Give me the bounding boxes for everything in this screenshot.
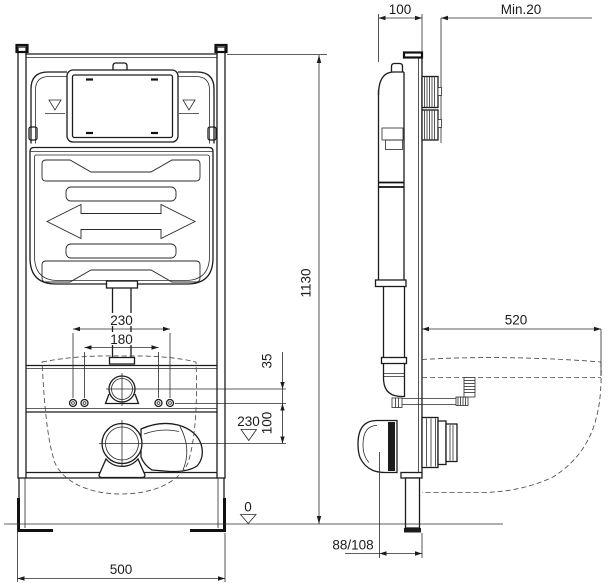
frame-height-dimension: 1130 [227,55,327,525]
marker-drain-height: 230 [237,414,260,429]
dim-bowl-depth: 520 [505,313,528,328]
cistern-frame-drawing: 230 180 35 100 230 0 [0,0,608,583]
waste-bend-side [358,421,397,473]
dim-frame-depth: 100 [389,2,412,17]
dim-frame-width: 500 [110,562,133,577]
drain-connection [99,420,202,478]
technical-drawing-canvas: 230 180 35 100 230 0 [0,0,608,583]
dim-bolt-spacing-inner: 180 [110,332,133,347]
level-marker-triangle [45,100,65,114]
marker-floor-zero: 0 [244,500,252,515]
outlet-connector-side [422,418,457,468]
dim-bolt-spacing-outer: 230 [110,313,133,328]
dim-wall-clearance: Min.20 [501,2,542,17]
supply-connection [106,373,139,406]
front-view: 230 180 35 100 230 0 [17,45,328,582]
bowl-depth-dimension: 520 [422,313,601,377]
dim-supply-drain-gap: 100 [260,412,275,435]
side-view: 100 Min.20 520 88/108 [332,2,601,558]
flush-pipe-side [382,287,407,397]
dim-frame-height: 1130 [299,268,314,297]
frame-feet [19,478,225,531]
dim-outlet-distance: 88/108 [332,538,373,553]
drain-height-marker: 230 [237,414,260,441]
cistern-tank [30,148,213,285]
cistern-side-profile [376,64,407,287]
foot-base-plate [404,528,421,533]
level-marker-triangle [241,430,257,441]
flush-actuator-plate-side [422,18,442,143]
dim-supply-offset: 35 [260,353,275,368]
level-marker-triangle [241,515,257,524]
frame-width-dimension: 500 [18,524,226,582]
floor-zero-marker: 0 [241,500,257,524]
access-window-assembly [29,63,216,144]
level-marker-triangle [179,100,199,114]
